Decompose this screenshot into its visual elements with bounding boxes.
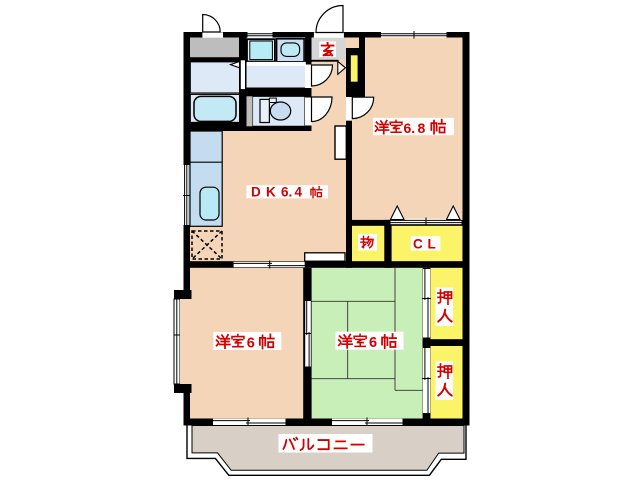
svg-text:6.: 6. xyxy=(404,120,416,136)
svg-text:K: K xyxy=(266,185,276,200)
svg-text:6.: 6. xyxy=(281,185,292,200)
svg-text:L: L xyxy=(428,237,436,252)
svg-text:C: C xyxy=(413,237,423,252)
svg-text:4: 4 xyxy=(295,185,303,200)
svg-text:6: 6 xyxy=(247,336,255,352)
svg-text:D: D xyxy=(251,185,261,200)
svg-text:8: 8 xyxy=(418,120,426,136)
svg-text:6: 6 xyxy=(369,335,377,351)
